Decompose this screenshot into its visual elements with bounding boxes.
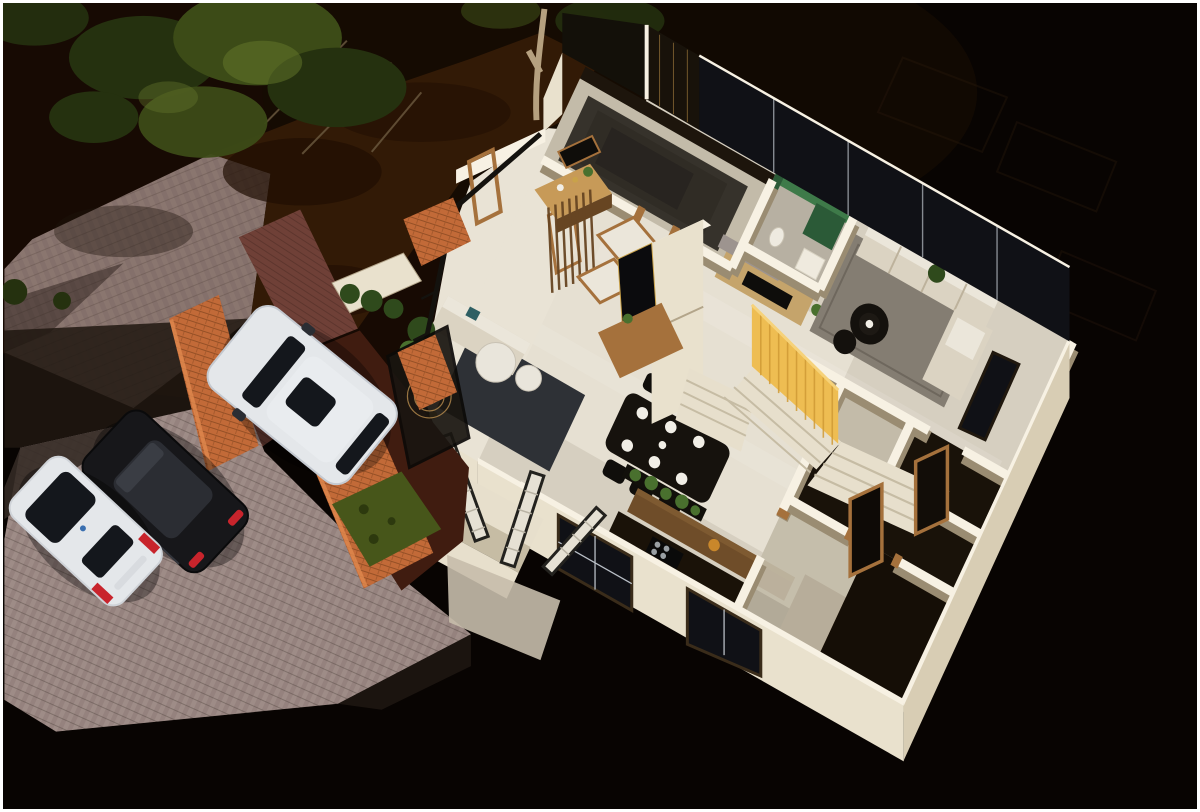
tree-shadow [54,205,193,257]
floorplan-render [3,3,1197,809]
vase [557,184,564,191]
door-frame [850,484,882,575]
marble-side-table [516,365,542,391]
lamp [572,177,578,183]
marble-coffee-table [476,342,516,382]
bush [53,292,71,310]
pot-plant [583,167,593,177]
door-frame [916,447,948,534]
render-viewport [0,0,1200,812]
console-plant [623,314,633,324]
